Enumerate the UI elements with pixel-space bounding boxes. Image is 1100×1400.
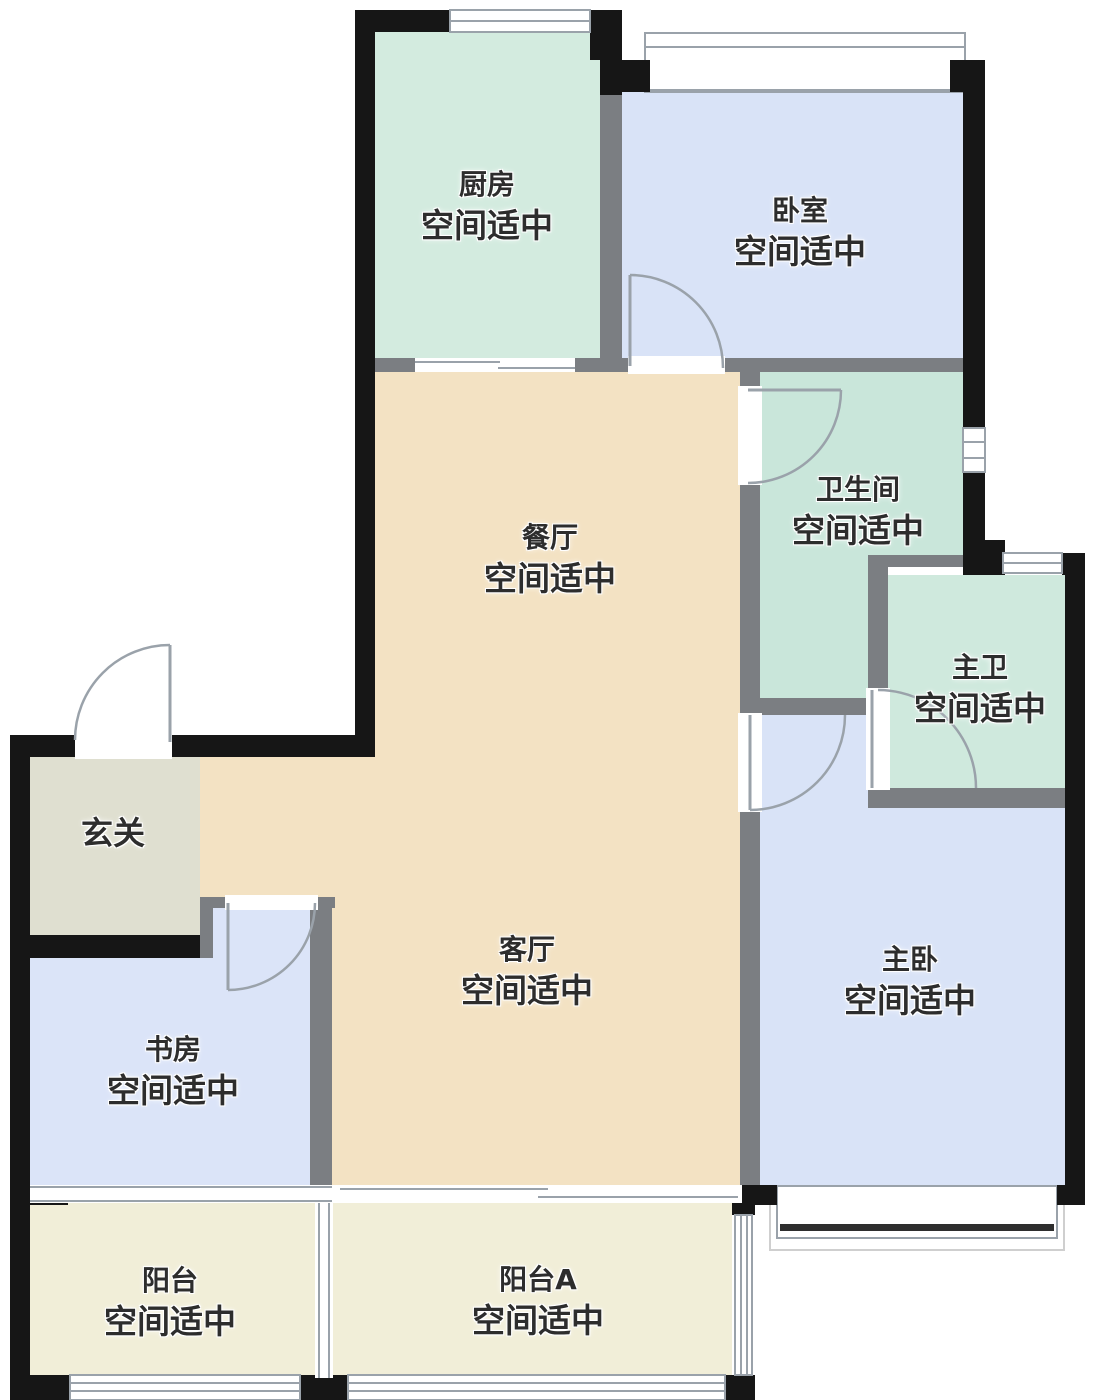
room-label-balcony: 阳台 空间适中: [104, 1263, 236, 1344]
bathroom-name: 卫生间: [792, 472, 924, 509]
room-label-study: 书房 空间适中: [107, 1032, 239, 1113]
balcony-a-name: 阳台A: [472, 1262, 604, 1299]
living-status: 空间适中: [461, 969, 593, 1013]
balcony-divider: [315, 1203, 333, 1378]
bathroom-status: 空间适中: [792, 509, 924, 553]
master-bath-name: 主卫: [914, 650, 1046, 687]
room-label-bedroom: 卧室 空间适中: [734, 193, 866, 274]
master-bath-status: 空间适中: [914, 687, 1046, 731]
study-status: 空间适中: [107, 1069, 239, 1113]
bedroom-bay-window: [645, 33, 965, 92]
room-label-master-bedroom: 主卧 空间适中: [844, 942, 976, 1023]
master-bath-door-gap: [866, 688, 890, 790]
master-bay-window-frame: [780, 1224, 1054, 1231]
bedroom-status: 空间适中: [734, 230, 866, 274]
room-label-balcony-a: 阳台A 空间适中: [472, 1262, 604, 1343]
balcony-window: [70, 1375, 300, 1400]
dining-living-area: [375, 358, 740, 1185]
balcony-a-side-window: [735, 1215, 752, 1375]
entry-door-arc: [75, 645, 170, 740]
entry-name: 玄关: [81, 812, 145, 854]
kitchen-name: 厨房: [421, 167, 553, 204]
bathroom-door-gap: [738, 386, 762, 485]
living-balcony-sliding-door: [332, 1185, 742, 1203]
entry-door-gap: [75, 733, 172, 759]
kitchen-status: 空间适中: [421, 204, 553, 248]
study-door-gap: [225, 895, 318, 910]
study-name: 书房: [107, 1032, 239, 1069]
floor-plan: 厨房 空间适中 卧室 空间适中 卫生间 空间适中 主卫 空间适中 餐厅 空间适中…: [0, 0, 1100, 1400]
room-label-entry: 玄关: [81, 812, 145, 854]
room-label-master-bath: 主卫 空间适中: [914, 650, 1046, 731]
master-bedroom-status: 空间适中: [844, 979, 976, 1023]
room-label-kitchen: 厨房 空间适中: [421, 167, 553, 248]
bedroom-door-gap: [628, 356, 725, 374]
dining-name: 餐厅: [484, 520, 616, 557]
dining-status: 空间适中: [484, 557, 616, 601]
balcony-status: 空间适中: [104, 1300, 236, 1344]
room-label-dining: 餐厅 空间适中: [484, 520, 616, 601]
living-name: 客厅: [461, 932, 593, 969]
balcony-name: 阳台: [104, 1263, 236, 1300]
bathroom-window: [963, 428, 985, 472]
kitchen-opening: [415, 358, 575, 372]
room-label-bathroom: 卫生间 空间适中: [792, 472, 924, 553]
master-bedroom-name: 主卧: [844, 942, 976, 979]
balcony-a-status: 空间适中: [472, 1299, 604, 1343]
bedroom-name: 卧室: [734, 193, 866, 230]
room-label-living: 客厅 空间适中: [461, 932, 593, 1013]
balcony-a-window: [348, 1375, 725, 1400]
